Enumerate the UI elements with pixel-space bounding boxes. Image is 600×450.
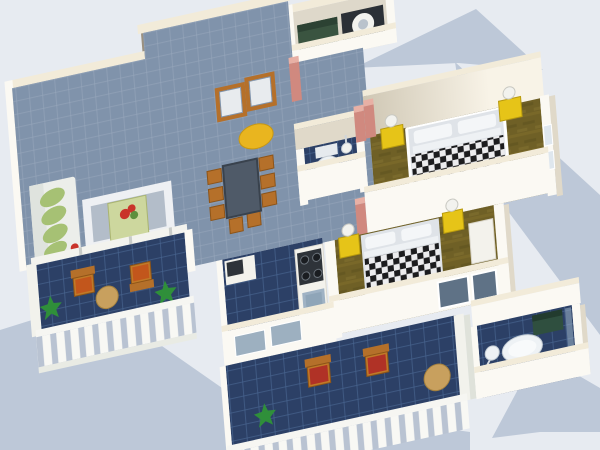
dining-chair [260,173,275,189]
floor-plan-canvas [0,0,600,450]
wardrobe [469,219,496,264]
nightstand [499,96,523,121]
nightstand [442,209,464,233]
glass-wall-post [169,227,173,236]
dining-chair [259,155,274,171]
dining-chair [207,168,222,184]
glass-wall-post [129,236,133,245]
nightstand [381,124,405,149]
dining-table [223,159,261,218]
nightstand [339,234,361,258]
glass-wall-post [79,247,83,256]
glass-door [438,276,470,309]
dining-chair [208,186,223,202]
dining-chair [229,217,243,234]
lounge-chair-cushion [250,77,272,105]
floor-plan-render [0,0,600,450]
window [543,124,553,146]
dining-chair [210,204,225,220]
lounge-chair-cushion [220,88,242,116]
dining-chair [262,191,277,207]
